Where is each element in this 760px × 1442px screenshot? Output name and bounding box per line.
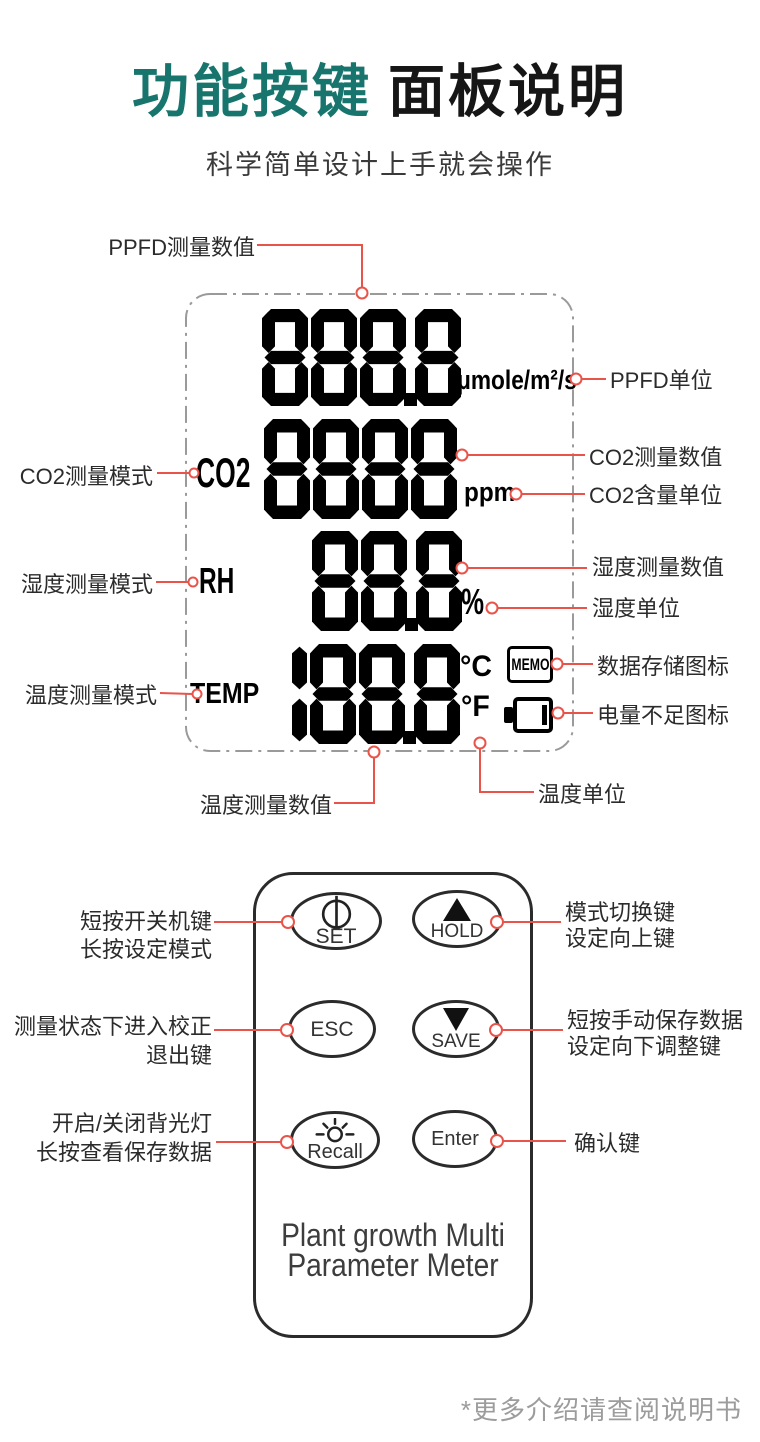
callout-temp-mode: 温度测量模式 [25, 682, 157, 710]
callout-set: 短按开关机键长按设定模式 [80, 908, 212, 964]
set-button-label: SET [316, 926, 357, 947]
save-button[interactable]: SAVE [412, 1000, 500, 1058]
battery-low-icon [503, 696, 554, 734]
arrow-down-icon [443, 1008, 469, 1031]
callout-humidity-unit: 湿度单位 [592, 595, 680, 623]
callout-temp-unit: 温度单位 [538, 781, 626, 809]
enter-button[interactable]: Enter [412, 1110, 498, 1168]
callout-co2-mode: CO2测量模式 [20, 463, 153, 491]
esc-button[interactable]: ESC [288, 1000, 376, 1058]
co2-value-digits [264, 419, 457, 519]
callout-save: 短按手动保存数据设定向下调整键 [567, 1008, 743, 1060]
callout-recall: 开启/关闭背光灯长按查看保存数据 [36, 1109, 212, 1167]
callout-temp-value: 温度测量数值 [200, 792, 332, 820]
enter-button-label: Enter [431, 1129, 479, 1149]
callout-esc: 测量状态下进入校正退出键 [14, 1012, 212, 1070]
callout-humidity-mode: 湿度测量模式 [21, 571, 153, 599]
callout-ppfd-unit: PPFD单位 [610, 367, 713, 395]
footer-note: *更多介绍请查阅说明书 [461, 1390, 742, 1427]
recall-button[interactable]: Recall [290, 1111, 380, 1169]
save-button-label: SAVE [431, 1032, 480, 1051]
page-title: 功能按键面板说明 [0, 58, 760, 126]
callout-battery: 电量不足图标 [597, 702, 729, 730]
line-ppfd-value [257, 245, 362, 288]
co2-mode-label: CO2 [196, 452, 282, 494]
recall-button-label: Recall [307, 1142, 363, 1162]
celsius-unit-text: °C [460, 652, 494, 682]
device-name-line1: Plant growth Multi [270, 1220, 516, 1250]
arrow-up-icon [443, 898, 471, 921]
humidity-unit-text: % [461, 584, 493, 620]
callout-memo: 数据存储图标 [597, 653, 729, 681]
backlight-icon [312, 1118, 358, 1143]
infographic-page: 功能按键面板说明 科学简单设计上手就会操作 CO2 RH TEMP μmole/… [0, 0, 760, 1442]
callout-co2-value: CO2测量数值 [589, 444, 722, 472]
page-subtitle: 科学简单设计上手就会操作 [0, 143, 760, 182]
callout-enter: 确认键 [574, 1130, 640, 1158]
hold-button[interactable]: HOLD [412, 890, 502, 948]
line-temp-value [334, 758, 374, 803]
page-title-accent: 功能按键 [132, 60, 372, 124]
callout-humidity-value: 湿度测量数值 [592, 554, 724, 582]
callout-ppfd-value: PPFD测量数值 [108, 234, 255, 262]
temp-value-digits [292, 644, 460, 744]
rh-mode-label: RH [199, 563, 251, 599]
line-temp-unit [480, 749, 534, 792]
co2-unit-text: ppm [464, 479, 521, 506]
esc-button-label: ESC [310, 1019, 353, 1040]
hold-button-label: HOLD [431, 922, 484, 941]
temp-mode-label: TEMP [190, 680, 271, 709]
ppfd-value-digits [262, 309, 461, 406]
fahrenheit-unit-text: °F [461, 692, 491, 722]
callout-co2-unit: CO2含量单位 [589, 482, 722, 510]
humidity-value-digits [312, 531, 462, 631]
device-name-line2: Parameter Meter [270, 1250, 516, 1280]
memo-icon: MEMO [507, 646, 553, 683]
device-name: Plant growth Multi Parameter Meter [270, 1220, 516, 1280]
page-title-rest: 面板说明 [388, 60, 628, 124]
ppfd-unit-text: μmole/m²/s [457, 367, 600, 394]
set-button[interactable]: SET [290, 892, 382, 950]
callout-hold: 模式切换键设定向上键 [565, 900, 675, 952]
